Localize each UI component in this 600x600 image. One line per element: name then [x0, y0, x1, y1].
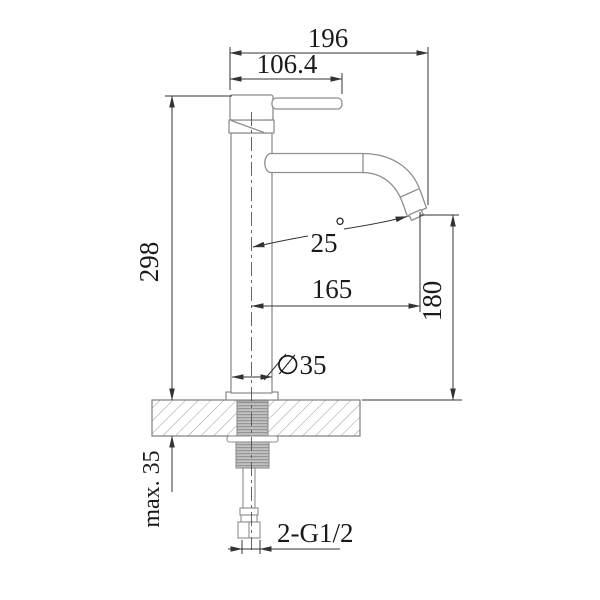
label-degree-symbol: °: [335, 214, 345, 240]
label-height: 298: [134, 242, 164, 283]
label-handle-reach: 106.4: [257, 49, 318, 79]
drawing-page: 196 106.4 298 25 ° 165 180 ∅35 max. 35 2…: [0, 0, 600, 600]
drawing-background: [0, 0, 600, 600]
label-max-deck-thickness: max. 35: [139, 450, 165, 527]
label-spout-reach: 165: [312, 274, 353, 304]
technical-drawing-canvas: 196 106.4 298 25 ° 165 180 ∅35 max. 35 2…: [0, 0, 600, 600]
hose-collar: [240, 508, 258, 515]
locking-nut-thread: [236, 442, 269, 468]
label-inlet-thread: 2-G1/2: [277, 518, 354, 548]
label-body-diameter: ∅35: [276, 350, 327, 380]
threaded-shank: [237, 401, 268, 436]
washer: [227, 436, 278, 442]
hose-ferrule: [241, 515, 257, 522]
label-outlet-height: 180: [417, 281, 447, 322]
label-spout-angle: 25: [311, 228, 338, 258]
flexible-hose: [243, 468, 255, 508]
handle-lever: [272, 98, 342, 109]
